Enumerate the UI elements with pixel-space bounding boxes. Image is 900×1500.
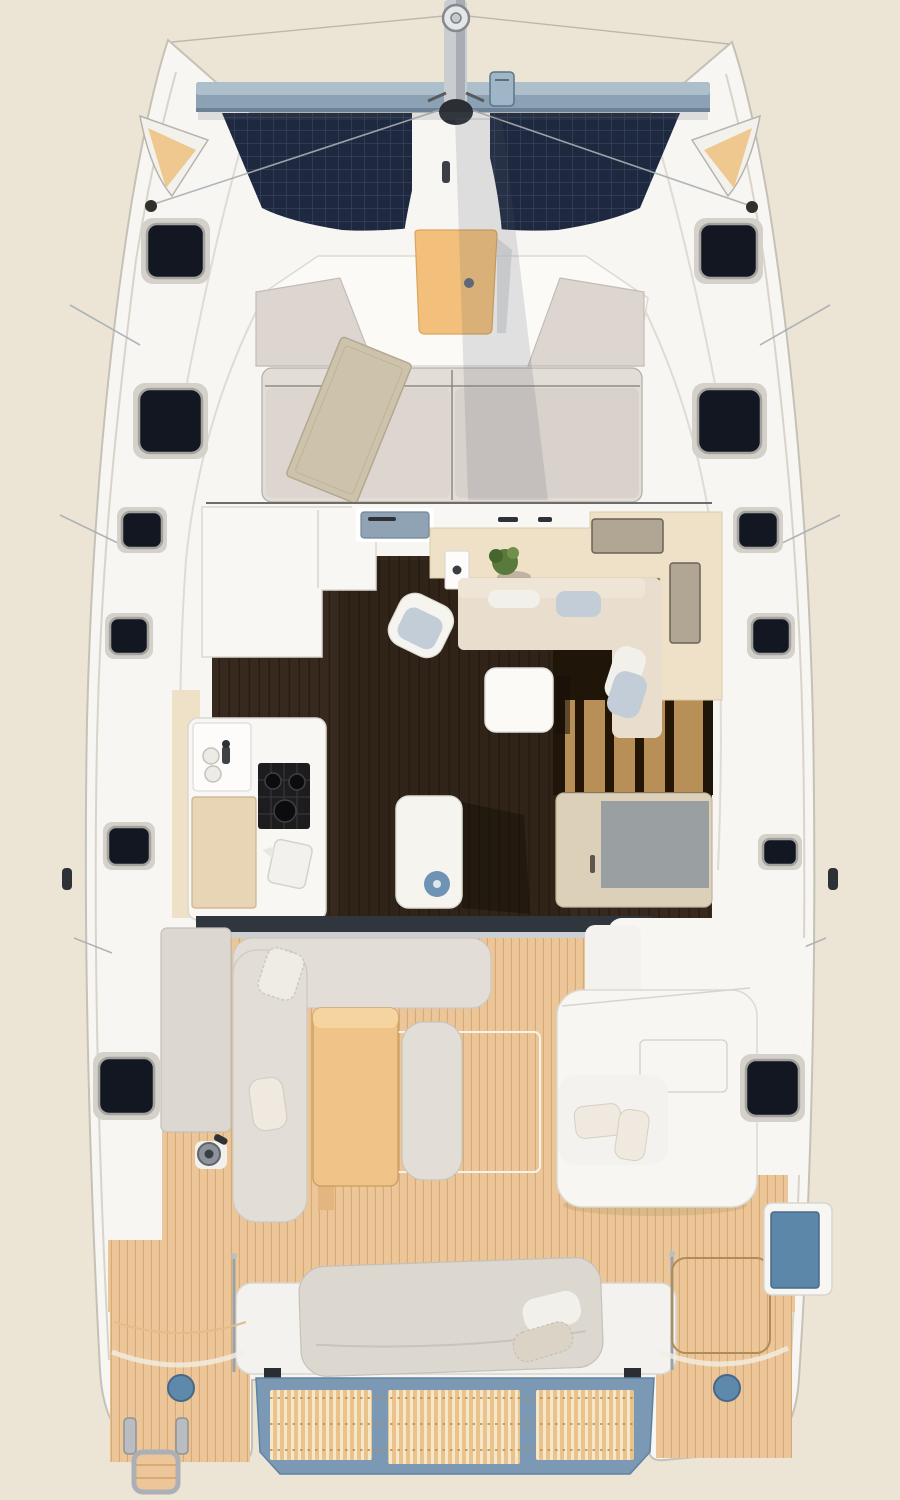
galley-faucet-head <box>222 740 230 748</box>
port-cabin-hatch-large <box>133 383 208 459</box>
deck-fitting-pin <box>442 161 450 183</box>
platform-slats-center <box>388 1390 520 1464</box>
plant-leaf-b <box>507 547 519 559</box>
starboard-stanchion-top <box>669 1251 675 1257</box>
catamaran-deck-plan <box>0 0 900 1500</box>
starboard-hatch-small-a <box>733 507 783 553</box>
island-shadow <box>462 802 530 914</box>
sofa-side-pillow <box>248 1076 289 1132</box>
cockpit-bench-cushion <box>402 1022 462 1180</box>
cockpit-table <box>313 1008 398 1186</box>
starboard-hatch-small-b <box>747 613 795 659</box>
mast-collar-center <box>451 13 461 23</box>
swim-platform <box>256 1378 654 1474</box>
sink-basin <box>361 512 429 538</box>
port-hatch-small-b <box>105 613 153 659</box>
door-track <box>196 916 652 932</box>
starboard-hatch-mid <box>758 834 802 870</box>
sofa-pillow-blue <box>556 591 601 617</box>
blue-bowl-center <box>433 880 441 888</box>
plant-leaf-a <box>489 549 503 563</box>
sink-bowl-a <box>203 748 219 764</box>
liferaft-locker <box>771 1212 819 1288</box>
starboard-cabin-hatch-large <box>692 383 767 459</box>
counter-hatch-fwd <box>592 519 663 553</box>
port-hatch-mid <box>103 822 155 870</box>
helm-cushion-a <box>573 1103 622 1140</box>
starboard-deck-fill <box>714 1375 740 1401</box>
ladder-rail-a <box>124 1418 136 1454</box>
sofa-backrest <box>458 578 645 598</box>
starboard-bow-hatch <box>694 218 763 284</box>
sink-bowl-b <box>205 766 221 782</box>
cutting-board <box>192 797 256 908</box>
aft-cabinet-handle <box>590 855 595 873</box>
port-cleat <box>62 868 72 890</box>
cockpit-table-end <box>313 1008 398 1028</box>
saloon-table <box>485 668 553 732</box>
sofa-pillow-white <box>488 590 540 608</box>
stove-burner-c <box>274 800 296 822</box>
beam-shadow <box>198 112 708 120</box>
table-shadow <box>556 676 570 734</box>
helm-cushion-b <box>614 1108 651 1162</box>
cockpit-table-leg <box>318 1186 334 1210</box>
starboard-cockpit-hatch <box>740 1054 805 1122</box>
deck-plan-canvas <box>0 0 900 1500</box>
port-hatch-small-a <box>117 507 167 553</box>
starboard-bow-cleat <box>746 201 758 213</box>
sunbed <box>298 1257 604 1377</box>
counter-appliance-dot <box>453 566 462 575</box>
port-bow-cleat <box>145 200 157 212</box>
beam-traveler-fitting <box>490 72 514 106</box>
boarding-ladder <box>134 1452 178 1492</box>
aft-cabinet-top <box>601 801 709 888</box>
stove-burner-a <box>265 773 281 789</box>
aft-cabinet <box>556 793 712 907</box>
galley-faucet <box>222 746 230 764</box>
port-stanchion-top <box>231 1253 237 1259</box>
port-console <box>161 928 231 1132</box>
counter-hatch-side <box>670 563 700 643</box>
stove <box>258 763 310 829</box>
port-cockpit-hatch <box>93 1052 160 1120</box>
saloon <box>172 503 722 944</box>
winch-center <box>205 1150 214 1159</box>
stove-burner-b <box>289 774 305 790</box>
starboard-cleat <box>828 868 838 890</box>
port-bow-hatch <box>141 218 210 284</box>
ladder-rail-b <box>176 1418 188 1454</box>
port-deck-fill <box>168 1375 194 1401</box>
